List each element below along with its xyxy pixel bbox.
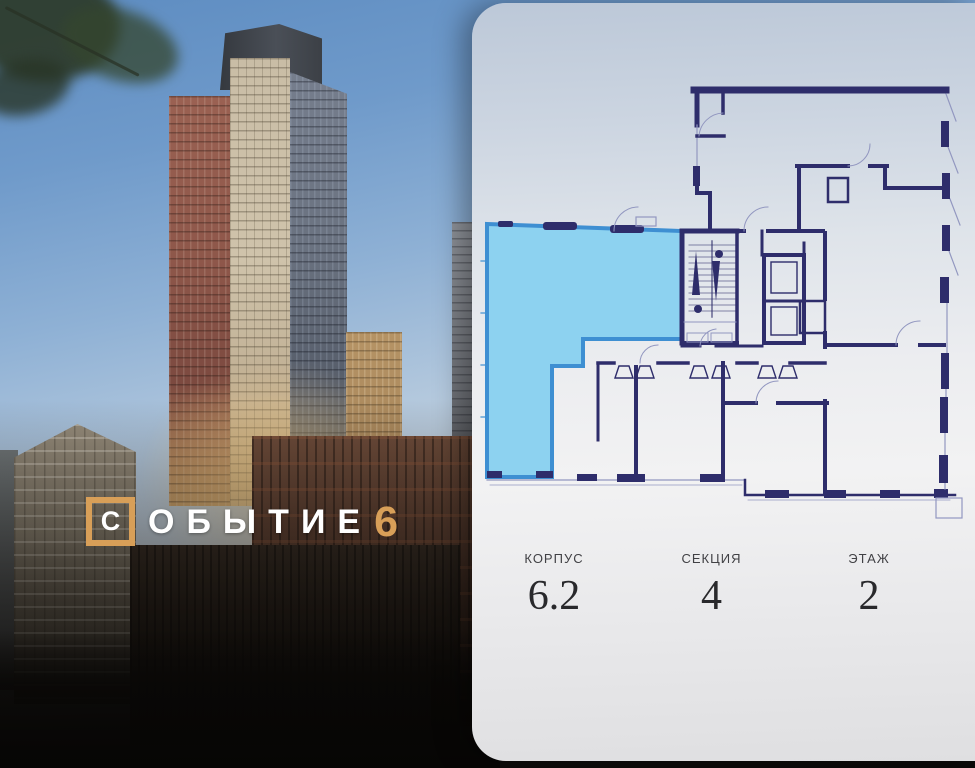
stair-marker (694, 305, 702, 313)
apartment-meta-row: КОРПУС 6.2 СЕКЦИЯ 4 ЭТАЖ 2 (506, 551, 917, 619)
floor-plan[interactable] (478, 75, 972, 527)
elevator-car (771, 262, 797, 293)
meta-korpus: КОРПУС 6.2 (506, 551, 602, 619)
elevator-block (762, 231, 804, 343)
logo-boxed-letter: С (101, 508, 121, 535)
apartment-info-panel: КОРПУС 6.2 СЕКЦИЯ 4 ЭТАЖ 2 (472, 3, 975, 761)
meta-korpus-label: КОРПУС (506, 551, 602, 566)
meta-korpus-value: 6.2 (506, 573, 602, 619)
brand-logo: С ОБЫТИЕ 6 (86, 497, 398, 546)
selected-apartment-highlight (487, 224, 682, 477)
floor-plan-container (478, 75, 972, 527)
stairwell (682, 231, 737, 343)
stairs-up-arrow (692, 251, 700, 295)
meta-etazh-value: 2 (821, 573, 917, 619)
right-facade-windows (939, 94, 960, 489)
selected-apartment[interactable] (481, 221, 682, 478)
meta-etazh: ЭТАЖ 2 (821, 551, 917, 619)
interior-walls-upper (697, 90, 941, 231)
elevator-car (771, 307, 797, 335)
meta-etazh-label: ЭТАЖ (821, 551, 917, 566)
meta-sektsiya-value: 4 (664, 573, 760, 619)
meta-sektsiya: СЕКЦИЯ 4 (664, 551, 760, 619)
meta-sektsiya-label: СЕКЦИЯ (664, 551, 760, 566)
logo-wordmark: ОБЫТИЕ (148, 505, 372, 539)
wardrobe-symbols (615, 366, 797, 378)
logo-frame-icon: С (86, 497, 135, 546)
logo-number: 6 (374, 501, 398, 544)
screen: С ОБЫТИЕ 6 (0, 0, 975, 768)
stair-marker (715, 250, 723, 258)
